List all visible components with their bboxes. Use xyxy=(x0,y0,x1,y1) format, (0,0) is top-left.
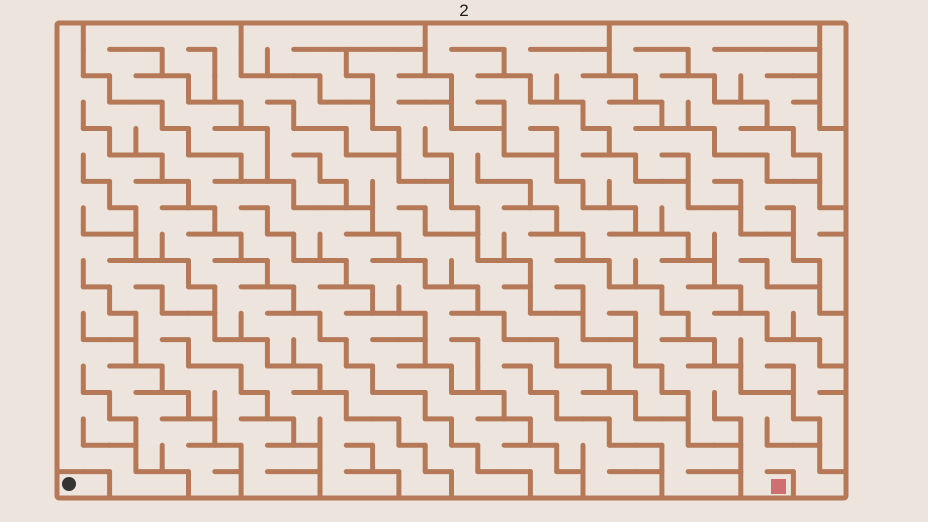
goal-square xyxy=(771,479,786,494)
game-stage: 2 xyxy=(0,0,928,522)
maze-walls xyxy=(57,23,846,498)
maze-canvas xyxy=(0,0,928,522)
player-dot[interactable] xyxy=(62,477,76,491)
